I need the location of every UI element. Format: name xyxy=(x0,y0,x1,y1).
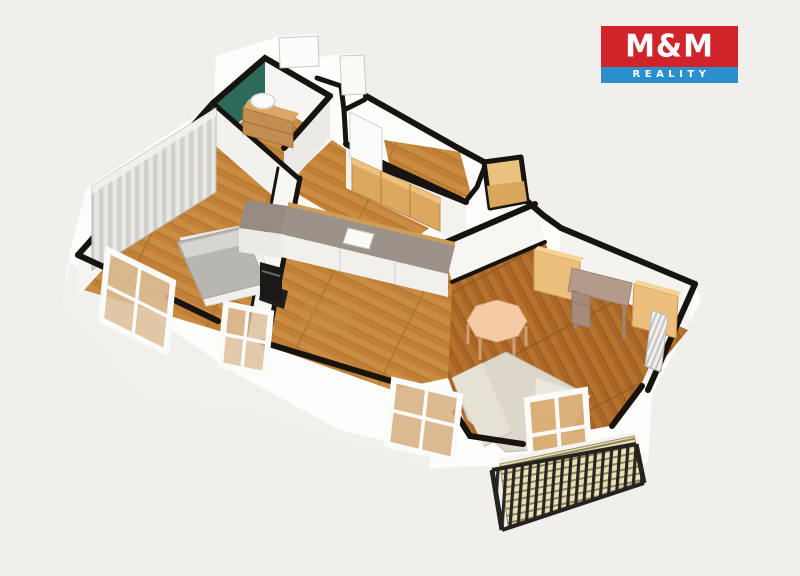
washbasin xyxy=(251,94,275,109)
mm-reality-logo: M&M REALITY xyxy=(601,26,738,83)
logo-line1: M&M xyxy=(625,31,714,63)
floor-plan-render xyxy=(0,0,800,576)
logo-bottom-bar: REALITY xyxy=(601,67,738,83)
logo-line2: REALITY xyxy=(629,70,711,80)
door-lintel-slab-2 xyxy=(340,55,366,95)
living-window xyxy=(387,380,460,460)
desk-drawers xyxy=(572,291,590,328)
entrance-door xyxy=(484,157,527,208)
oven-front xyxy=(260,262,282,303)
door-lintel-slab-1 xyxy=(279,36,319,68)
logo-top-bar: M&M xyxy=(601,26,738,67)
bedroom-window-2 xyxy=(220,304,271,374)
dining-table-top xyxy=(467,300,527,342)
screenshot-canvas: M&M REALITY xyxy=(0,0,800,576)
countertop-left-arm xyxy=(239,200,288,234)
entry-vertical-line xyxy=(344,110,346,144)
